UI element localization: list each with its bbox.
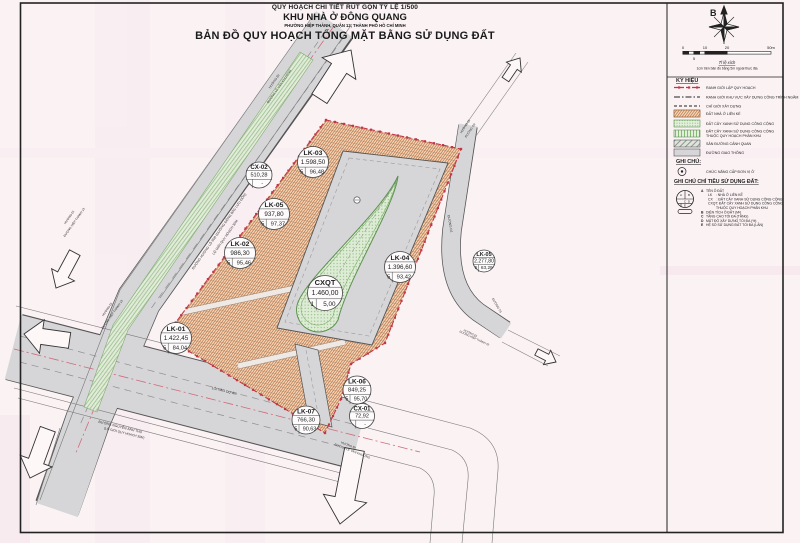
svg-text:5: 5 [475,265,478,270]
svg-text:LK-04: LK-04 [391,255,410,262]
svg-text:THUỘC QUY HOẠCH PHÂN KHU: THUỘC QUY HOẠCH PHÂN KHU [716,205,768,210]
svg-text:93,42: 93,42 [397,275,412,281]
svg-text:ĐẤT CÂY XANH SỬ DỤNG CÔNG CỘNG: ĐẤT CÂY XANH SỬ DỤNG CÔNG CỘNG [706,121,774,126]
svg-text:849,25: 849,25 [348,388,367,394]
svg-text:ĐƯỜNG GIAO THÔNG: ĐƯỜNG GIAO THÔNG [706,150,744,155]
svg-text:CX-01: CX-01 [353,406,371,412]
svg-text:HỆ SỐ SỬ DỤNG ĐẤT TỐI ĐA (LẦN): HỆ SỐ SỬ DỤNG ĐẤT TỐI ĐA (LẦN) [706,222,763,227]
svg-text:GHI CHÚ:: GHI CHÚ: [676,158,701,165]
svg-text:5: 5 [227,261,230,267]
svg-text:GHI CHÚ CHỈ TIÊU SỬ DỤNG ĐẤT:: GHI CHÚ CHỈ TIÊU SỬ DỤNG ĐẤT: [674,177,759,185]
svg-text:986,30: 986,30 [230,250,250,257]
svg-text:Tỉ lệ xích: Tỉ lệ xích [719,60,736,65]
svg-text:5: 5 [693,56,696,61]
svg-text:RANH GIỚI LẬP QUY HOẠCH: RANH GIỚI LẬP QUY HOẠCH [706,85,756,90]
svg-text:LK-06: LK-06 [348,379,366,386]
svg-text:LK-05: LK-05 [265,202,284,209]
svg-text:90,63: 90,63 [303,427,317,433]
svg-text:0: 0 [682,45,685,50]
svg-text:937,80: 937,80 [264,211,284,218]
svg-text:5,00: 5,00 [323,301,336,308]
svg-text:A: A [680,193,682,197]
svg-text:5: 5 [294,427,297,433]
svg-text:D: D [688,200,691,204]
svg-text:RANH GIỚI KHU VỰC XÂY DỰNG CÔN: RANH GIỚI KHU VỰC XÂY DỰNG CÔNG TRÌNH NG… [706,94,798,99]
svg-text:1.396,60: 1.396,60 [388,264,413,271]
svg-text:KÝ HIỆU: KÝ HIỆU [676,76,698,84]
svg-text:20: 20 [725,45,730,50]
svg-text:CXQT: CXQT [315,278,336,287]
svg-text:-: - [364,421,366,427]
svg-text:5: 5 [261,222,264,228]
svg-text:95,70: 95,70 [354,397,368,403]
svg-text:50m: 50m [767,45,775,50]
svg-text:72,92: 72,92 [355,414,369,420]
svg-text:LK-07: LK-07 [297,409,315,416]
svg-text:95,46: 95,46 [237,261,252,267]
svg-text:84,04: 84,04 [173,346,188,352]
svg-text:1.460,00: 1.460,00 [312,290,339,297]
svg-text:5: 5 [300,170,303,176]
svg-text:THUỘC QUY HOẠCH PHÂN KHU: THUỘC QUY HOẠCH PHÂN KHU [706,133,761,138]
svg-text:10: 10 [703,45,708,50]
svg-text:ĐƯỜNG HIỆP THÀNH 42: ĐƯỜNG HIỆP THÀNH 42 [459,329,491,347]
svg-text:LK-05: LK-05 [476,252,491,258]
svg-text:CHỈ GIỚI XÂY DỰNG: CHỈ GIỚI XÂY DỰNG [706,103,741,108]
svg-text:CHỨC NĂNG CẤP ĐƠN VỊ Ở: CHỨC NĂNG CẤP ĐƠN VỊ Ở [706,169,754,174]
svg-text:ĐẤT NHÀ Ở LIÊN KẾ: ĐẤT NHÀ Ở LIÊN KẾ [706,111,741,116]
svg-text:96,48: 96,48 [310,170,325,176]
svg-text:1cm trên bản đồ bằng 5m ngoài: 1cm trên bản đồ bằng 5m ngoài thực địa [696,66,757,71]
svg-text:E: E [684,204,686,208]
svg-text:1: 1 [311,301,315,308]
svg-text:-: - [249,181,251,187]
svg-text:-: - [261,181,263,187]
svg-text:1.598,50: 1.598,50 [301,159,326,166]
svg-text:97,37: 97,37 [271,222,286,228]
svg-text:5: 5 [163,346,166,352]
svg-text:LK-01: LK-01 [167,326,186,333]
svg-text:LK-02: LK-02 [231,241,250,248]
svg-text:-: - [352,421,354,427]
svg-text:A: A [701,189,704,193]
svg-text:E: E [701,223,704,227]
svg-text:5: 5 [387,275,390,281]
svg-text:2.277,80: 2.277,80 [474,258,494,264]
svg-text:B: B [688,193,690,197]
svg-text:510,28: 510,28 [250,173,267,179]
svg-text:1.422,45: 1.422,45 [164,335,189,342]
svg-text:5: 5 [345,397,348,403]
svg-text:CX-02: CX-02 [250,164,268,171]
svg-text:B: B [710,8,717,18]
svg-text:63,29: 63,29 [481,265,493,270]
svg-text:766,30: 766,30 [297,418,316,424]
svg-text:LK-03: LK-03 [304,150,323,157]
svg-text:SÂN ĐƯỜNG CẢNH QUAN: SÂN ĐƯỜNG CẢNH QUAN [706,141,751,146]
